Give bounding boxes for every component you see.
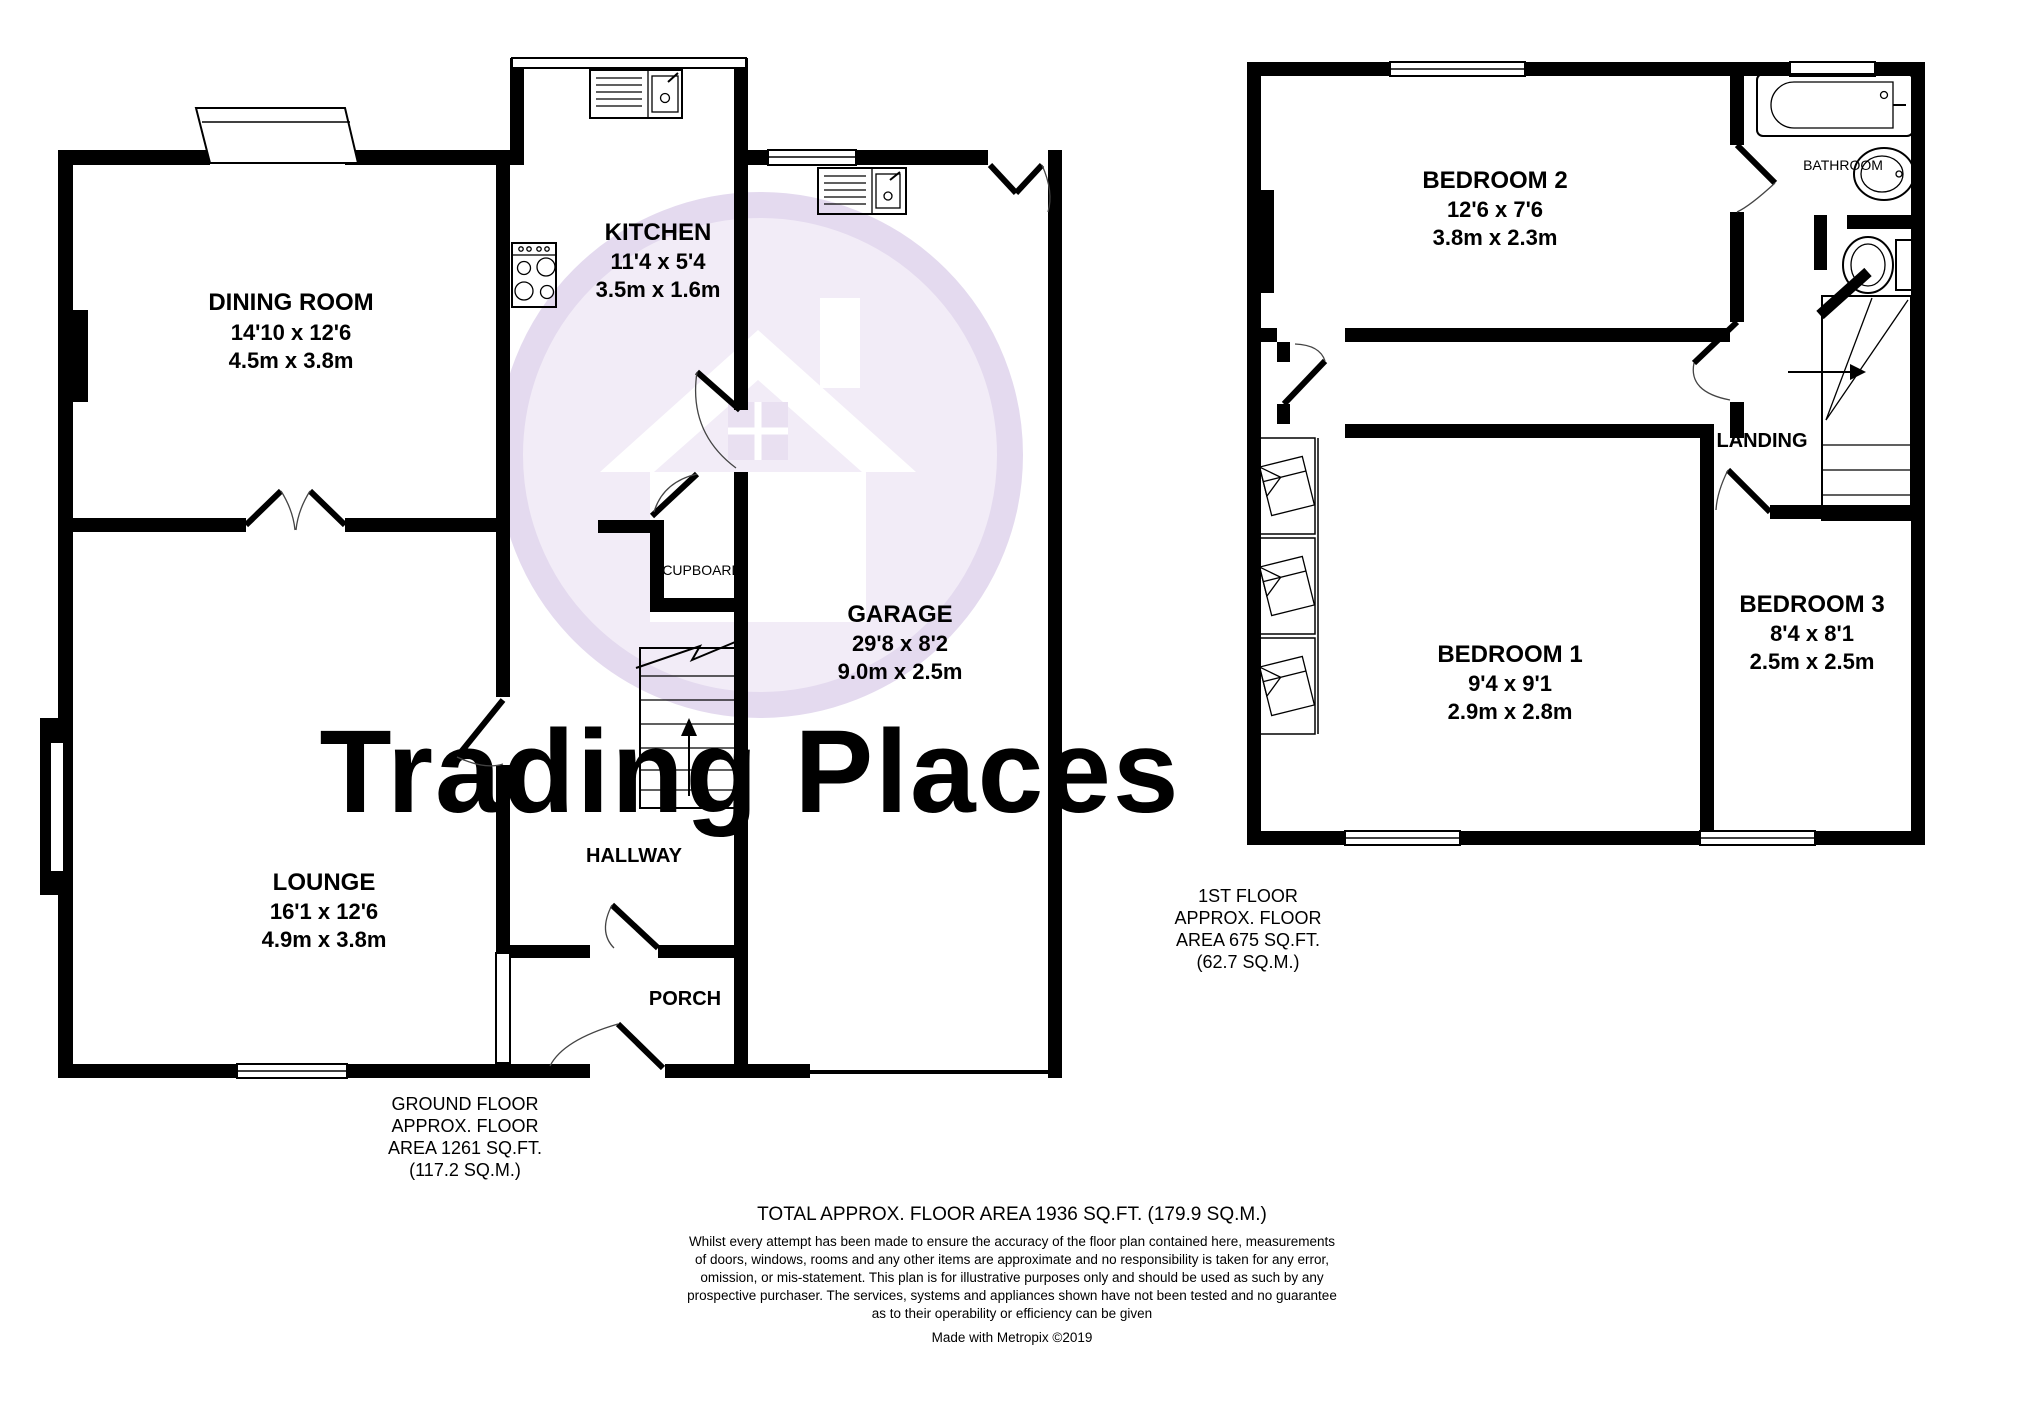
lounge-metric: 4.9m x 3.8m <box>262 927 387 952</box>
front-door <box>550 1024 663 1068</box>
disclaimer-line1: Whilst every attempt has been made to en… <box>689 1234 1335 1249</box>
disclaimer-line5: as to their operability or efficiency ca… <box>872 1306 1152 1321</box>
ground-caption-line2: APPROX. FLOOR <box>391 1116 538 1136</box>
ground-caption-line3: AREA 1261 SQ.FT. <box>388 1138 542 1158</box>
bedroom2-label: BEDROOM 2 <box>1422 167 1567 194</box>
bay-window-icon <box>196 108 358 163</box>
bedroom2-imperial: 12'6 x 7'6 <box>1447 197 1543 222</box>
disclaimer-line2: of doors, windows, rooms and any other i… <box>695 1252 1329 1267</box>
first-caption-line4: (62.7 SQ.M.) <box>1196 952 1299 972</box>
bathroom-label: BATHROOM <box>1803 157 1883 173</box>
ground-floor-caption: GROUND FLOOR APPROX. FLOOR AREA 1261 SQ.… <box>388 1094 542 1180</box>
bathroom-door <box>1737 145 1775 212</box>
bedroom3-label: BEDROOM 3 <box>1739 591 1884 618</box>
bedroom3-imperial: 8'4 x 8'1 <box>1770 621 1854 646</box>
bedroom1-label: BEDROOM 1 <box>1437 641 1582 668</box>
first-caption-line2: APPROX. FLOOR <box>1174 908 1321 928</box>
lounge-bay-window <box>50 742 64 872</box>
porch-window <box>496 953 510 1063</box>
bedroom3-metric: 2.5m x 2.5m <box>1750 649 1875 674</box>
kitchen-sink-icon <box>590 70 682 118</box>
garage-imperial: 29'8 x 8'2 <box>852 631 948 656</box>
first-caption-line3: AREA 675 SQ.FT. <box>1176 930 1320 950</box>
hob-icon <box>512 243 556 307</box>
landing-label: LANDING <box>1716 430 1807 452</box>
disclaimer-line4: prospective purchaser. The services, sys… <box>687 1288 1337 1303</box>
garage-double-door <box>990 165 1050 212</box>
garage-metric: 9.0m x 2.5m <box>838 659 963 684</box>
landing-angled-wall <box>1820 272 1868 315</box>
watermark-logo <box>510 205 1010 705</box>
ground-caption-line4: (117.2 SQ.M.) <box>409 1160 521 1180</box>
basin-icon <box>1854 148 1914 200</box>
dining-room-metric: 4.5m x 3.8m <box>229 348 354 373</box>
lounge-imperial: 16'1 x 12'6 <box>270 899 378 924</box>
bedroom2-metric: 3.8m x 2.3m <box>1433 225 1558 250</box>
cupboard-label: CUPBOARD <box>662 562 741 578</box>
first-caption-line1: 1ST FLOOR <box>1198 886 1298 906</box>
dining-room-imperial: 14'10 x 12'6 <box>231 320 352 345</box>
floorplan-canvas: Trading Places <box>0 0 2025 1404</box>
kitchen-imperial: 11'4 x 5'4 <box>611 249 707 274</box>
ground-caption-line1: GROUND FLOOR <box>391 1094 538 1114</box>
bath-icon <box>1757 74 1913 136</box>
floorplan-page: Trading Places <box>0 0 2025 1404</box>
lounge-label: LOUNGE <box>273 869 376 896</box>
kitchen-window <box>512 58 746 68</box>
porch-inner-door <box>605 905 658 948</box>
wardrobe-icons <box>1259 438 1318 734</box>
disclaimer-line3: omission, or mis-statement. This plan is… <box>700 1270 1324 1285</box>
footer: TOTAL APPROX. FLOOR AREA 1936 SQ.FT. (17… <box>687 1204 1337 1345</box>
kitchen-label: KITCHEN <box>605 219 712 246</box>
stairs-icon <box>1788 296 1911 520</box>
porch-label: PORCH <box>649 988 721 1010</box>
metropix-credit: Made with Metropix ©2019 <box>932 1330 1093 1345</box>
dining-room-label: DINING ROOM <box>208 289 373 316</box>
bedroom1-metric: 2.9m x 2.8m <box>1448 699 1573 724</box>
bedroom3-door <box>1716 470 1770 512</box>
bedroom1-door <box>1284 344 1325 404</box>
dining-double-doors <box>246 491 345 530</box>
first-floor-walls <box>1247 62 1925 845</box>
hallway-label: HALLWAY <box>586 845 683 867</box>
garage-label: GARAGE <box>847 601 952 628</box>
first-floor-caption: 1ST FLOOR APPROX. FLOOR AREA 675 SQ.FT. … <box>1174 886 1321 972</box>
bedroom1-imperial: 9'4 x 9'1 <box>1468 671 1552 696</box>
kitchen-metric: 3.5m x 1.6m <box>596 277 721 302</box>
total-area-text: TOTAL APPROX. FLOOR AREA 1936 SQ.FT. (17… <box>757 1204 1267 1225</box>
